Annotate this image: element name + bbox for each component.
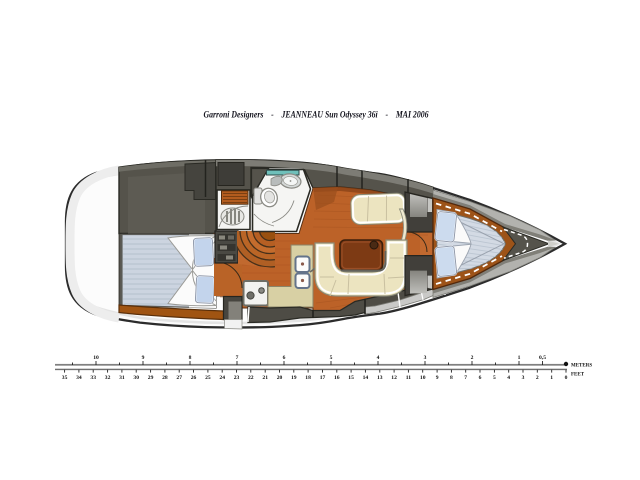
svg-text:15: 15 <box>348 375 354 381</box>
svg-text:28: 28 <box>162 375 168 381</box>
svg-text:4: 4 <box>507 375 510 381</box>
svg-text:10: 10 <box>93 355 99 361</box>
svg-text:19: 19 <box>291 375 297 381</box>
svg-text:26: 26 <box>191 375 197 381</box>
svg-text:22: 22 <box>248 375 254 381</box>
svg-text:1: 1 <box>518 355 521 361</box>
svg-text:6: 6 <box>479 375 482 381</box>
svg-text:2: 2 <box>536 375 539 381</box>
svg-text:5: 5 <box>493 375 496 381</box>
svg-text:33: 33 <box>90 375 96 381</box>
svg-text:6: 6 <box>283 355 286 361</box>
svg-text:7: 7 <box>236 355 239 361</box>
svg-text:23: 23 <box>234 375 240 381</box>
svg-text:29: 29 <box>148 375 154 381</box>
svg-text:0,5: 0,5 <box>539 355 546 361</box>
svg-text:30: 30 <box>133 375 139 381</box>
svg-text:9: 9 <box>142 355 145 361</box>
svg-text:32: 32 <box>105 375 111 381</box>
svg-text:FEET: FEET <box>571 373 585 378</box>
svg-text:34: 34 <box>76 375 82 381</box>
svg-text:4: 4 <box>377 355 380 361</box>
svg-text:35: 35 <box>62 375 68 381</box>
svg-text:11: 11 <box>406 375 411 381</box>
svg-text:20: 20 <box>277 375 283 381</box>
svg-text:8: 8 <box>189 355 192 361</box>
svg-text:27: 27 <box>176 375 182 381</box>
svg-text:17: 17 <box>320 375 326 381</box>
svg-text:1: 1 <box>550 375 553 381</box>
svg-text:12: 12 <box>391 375 397 381</box>
svg-text:25: 25 <box>205 375 211 381</box>
svg-text:24: 24 <box>219 375 225 381</box>
svg-text:2: 2 <box>471 355 474 361</box>
svg-text:Garroni Designers - JEAN: Garroni Designers - JEANNEAU Sun Odyssey… <box>204 111 429 121</box>
svg-text:3: 3 <box>424 355 427 361</box>
svg-text:9: 9 <box>436 375 439 381</box>
svg-text:13: 13 <box>377 375 383 381</box>
svg-text:31: 31 <box>119 375 125 381</box>
svg-text:0: 0 <box>565 375 568 381</box>
svg-text:3: 3 <box>522 375 525 381</box>
svg-text:14: 14 <box>363 375 369 381</box>
svg-text:16: 16 <box>334 375 340 381</box>
svg-text:METERS: METERS <box>571 364 592 369</box>
svg-text:18: 18 <box>305 375 311 381</box>
svg-text:21: 21 <box>262 375 268 381</box>
svg-text:8: 8 <box>450 375 453 381</box>
svg-text:5: 5 <box>330 355 333 361</box>
svg-text:10: 10 <box>420 375 426 381</box>
svg-text:7: 7 <box>464 375 467 381</box>
